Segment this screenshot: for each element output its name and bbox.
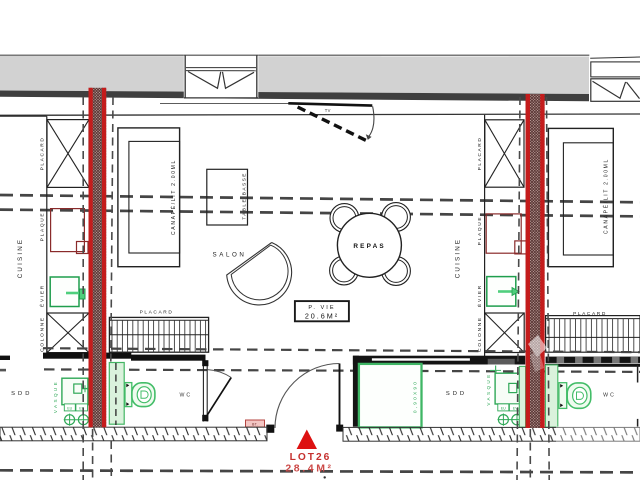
svg-text:COLONNE: COLONNE xyxy=(40,316,46,352)
svg-text:SDD: SDD xyxy=(446,391,467,397)
svg-text:WC: WC xyxy=(179,393,192,399)
svg-text:SDD: SDD xyxy=(11,391,32,397)
svg-text:LOT26: LOT26 xyxy=(290,452,332,463)
svg-text:TV: TV xyxy=(325,108,331,113)
svg-text:CUISINE: CUISINE xyxy=(17,238,24,279)
svg-text:EU: EU xyxy=(67,406,72,410)
svg-text:WC: WC xyxy=(603,392,616,398)
svg-text:REPAS: REPAS xyxy=(353,243,386,250)
svg-text:ÉVIER: ÉVIER xyxy=(39,284,46,307)
svg-text:ÉVIER: ÉVIER xyxy=(476,284,483,307)
svg-text:P. VIE: P. VIE xyxy=(308,305,335,311)
svg-text:PLAQUE: PLAQUE xyxy=(477,216,483,246)
svg-text:PLACARD: PLACARD xyxy=(40,137,46,171)
svg-text:PLACARD: PLACARD xyxy=(477,137,483,171)
svg-text:20.6M²: 20.6M² xyxy=(305,312,339,321)
svg-text:CUISINE: CUISINE xyxy=(455,238,462,279)
svg-text:BT.: BT. xyxy=(252,423,258,427)
svg-text:PLAQUE: PLAQUE xyxy=(40,212,46,242)
svg-text:28.4M²: 28.4M² xyxy=(285,463,333,475)
svg-text:CANAPÉ/LIT 2.00ML: CANAPÉ/LIT 2.00ML xyxy=(602,158,609,234)
svg-text:VASQUE: VASQUE xyxy=(486,372,491,405)
svg-text:CANAPÉ/LIT 2.00ML: CANAPÉ/LIT 2.00ML xyxy=(170,159,177,235)
svg-text:PLACARD: PLACARD xyxy=(573,311,607,317)
svg-text:TABLE BASSE: TABLE BASSE xyxy=(241,172,247,220)
svg-text:SALON: SALON xyxy=(213,252,247,259)
svg-text:PLACARD: PLACARD xyxy=(140,310,174,316)
svg-text:EU: EU xyxy=(501,406,506,410)
svg-text:VASQUE: VASQUE xyxy=(53,380,58,413)
svg-text:0,90X90: 0,90X90 xyxy=(413,380,419,413)
svg-text:COLONNE: COLONNE xyxy=(477,316,483,352)
